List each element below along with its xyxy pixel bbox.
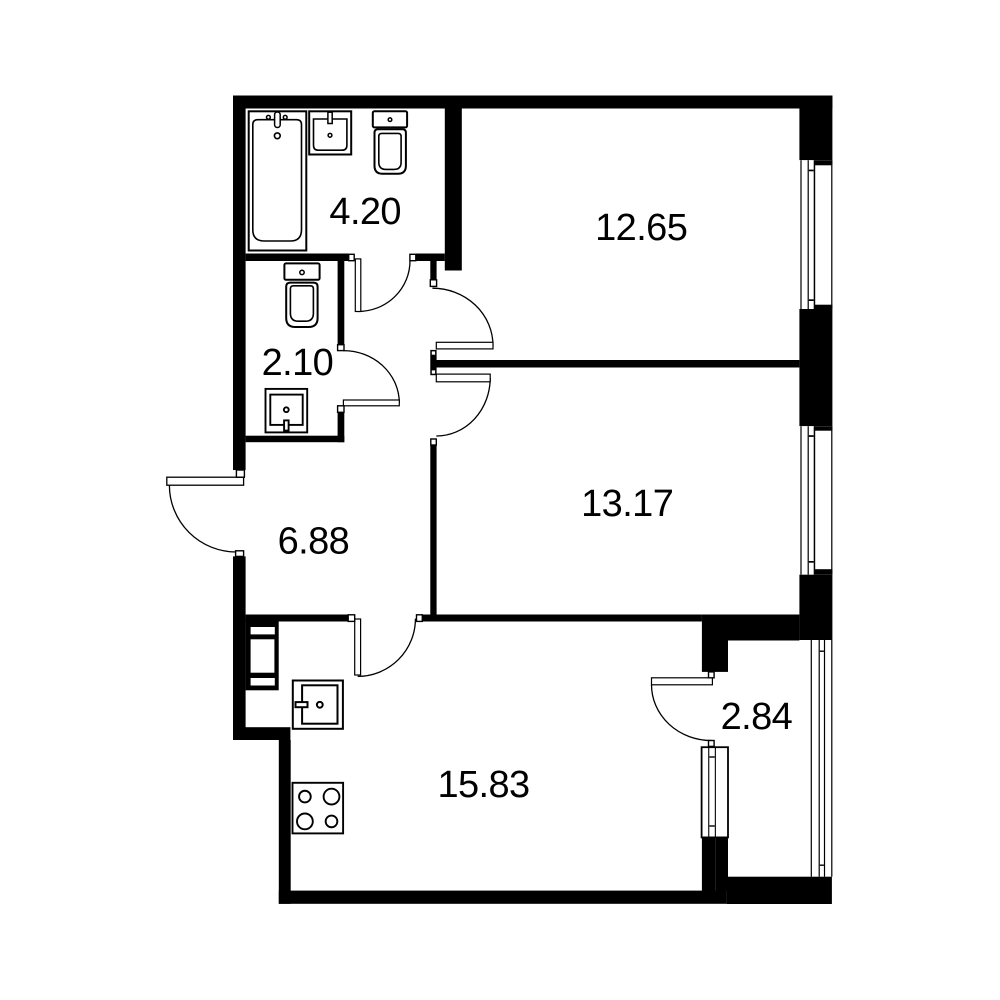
svg-text:2.84: 2.84 — [721, 696, 793, 738]
svg-text:12.65: 12.65 — [595, 207, 687, 249]
svg-text:4.20: 4.20 — [329, 191, 401, 233]
svg-text:13.17: 13.17 — [581, 483, 673, 525]
svg-text:2.10: 2.10 — [262, 342, 334, 384]
svg-text:15.83: 15.83 — [437, 764, 529, 806]
svg-text:6.88: 6.88 — [278, 521, 350, 563]
